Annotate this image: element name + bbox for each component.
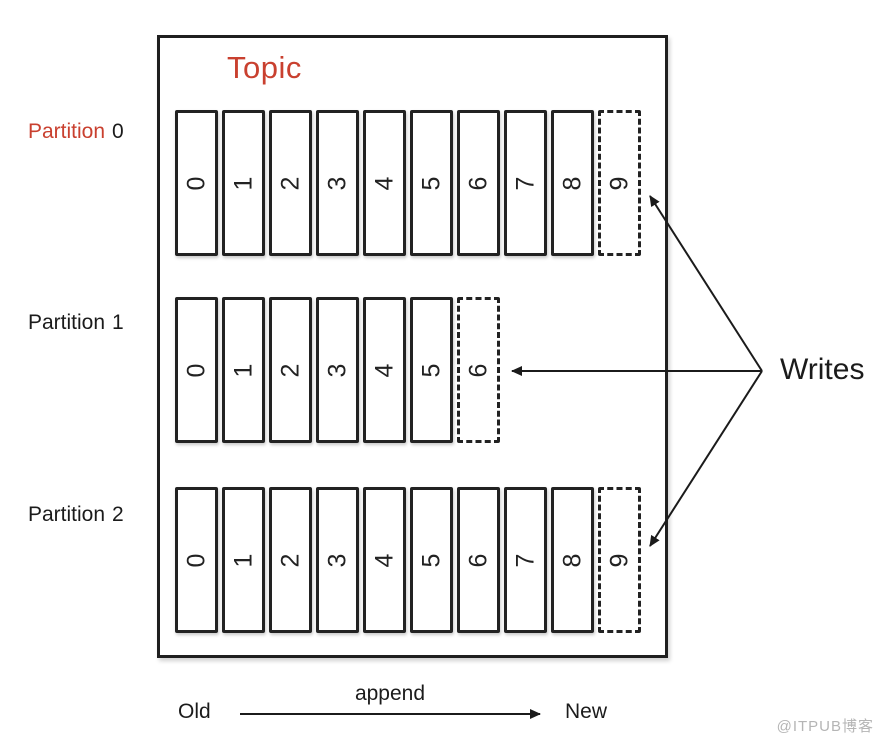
segment-offset-label: 1: [231, 176, 256, 190]
segment-offset-label: 9: [607, 176, 632, 190]
segment-cell: 0: [175, 487, 218, 633]
segment-cell-next: 9: [598, 110, 641, 256]
segment-offset-label: 4: [372, 363, 397, 377]
segment-offset-label: 5: [419, 363, 444, 377]
writes-label: Writes: [780, 353, 864, 387]
legend-append: append: [310, 682, 470, 706]
segment-offset-label: 0: [184, 363, 209, 377]
segment-offset-label: 2: [278, 363, 303, 377]
segment-cell: 4: [363, 110, 406, 256]
segment-cell: 1: [222, 110, 265, 256]
segment-offset-label: 9: [607, 553, 632, 567]
segment-cell: 2: [269, 110, 312, 256]
segment-offset-label: 7: [513, 176, 538, 190]
segment-offset-label: 2: [278, 176, 303, 190]
segment-cell: 5: [410, 297, 453, 443]
segment-cell: 2: [269, 297, 312, 443]
partition-0-segments: 0123456789: [175, 110, 641, 256]
segment-offset-label: 3: [325, 176, 350, 190]
segment-cell: 3: [316, 297, 359, 443]
segment-offset-label: 0: [184, 553, 209, 567]
partition-1-segments: 0123456: [175, 297, 500, 443]
topic-title: Topic: [227, 50, 302, 86]
partition-2-label: Partition2: [28, 503, 124, 527]
legend-new: New: [565, 700, 607, 724]
segment-cell: 4: [363, 487, 406, 633]
segment-offset-label: 8: [560, 553, 585, 567]
kafka-topic-diagram: Topic Partition0 Partition1 Partition2 0…: [0, 0, 890, 742]
partition-1-label: Partition1: [28, 311, 124, 335]
segment-offset-label: 6: [466, 363, 491, 377]
segment-offset-label: 1: [231, 553, 256, 567]
partition-0-label: Partition0: [28, 120, 124, 144]
segment-cell: 2: [269, 487, 312, 633]
segment-offset-label: 7: [513, 553, 538, 567]
segment-cell: 4: [363, 297, 406, 443]
segment-cell-next: 9: [598, 487, 641, 633]
segment-cell: 5: [410, 110, 453, 256]
watermark: @ITPUB博客: [777, 715, 874, 736]
segment-cell: 0: [175, 110, 218, 256]
segment-cell: 3: [316, 110, 359, 256]
segment-cell: 7: [504, 487, 547, 633]
partition-1-label-number: 1: [112, 311, 124, 334]
segment-offset-label: 5: [419, 553, 444, 567]
segment-offset-label: 2: [278, 553, 303, 567]
segment-offset-label: 0: [184, 176, 209, 190]
segment-offset-label: 5: [419, 176, 444, 190]
segment-cell: 1: [222, 297, 265, 443]
segment-cell: 0: [175, 297, 218, 443]
partition-2-segments: 0123456789: [175, 487, 641, 633]
legend-old: Old: [178, 700, 211, 724]
segment-offset-label: 6: [466, 176, 491, 190]
segment-cell: 1: [222, 487, 265, 633]
segment-offset-label: 6: [466, 553, 491, 567]
segment-cell-next: 6: [457, 297, 500, 443]
segment-cell: 8: [551, 110, 594, 256]
segment-cell: 6: [457, 110, 500, 256]
segment-cell: 7: [504, 110, 547, 256]
partition-0-label-number: 0: [112, 120, 124, 143]
segment-offset-label: 4: [372, 553, 397, 567]
partition-2-label-number: 2: [112, 503, 124, 526]
segment-offset-label: 1: [231, 363, 256, 377]
partition-2-label-prefix: Partition: [28, 503, 105, 526]
segment-cell: 8: [551, 487, 594, 633]
segment-offset-label: 3: [325, 363, 350, 377]
partition-1-label-prefix: Partition: [28, 311, 105, 334]
segment-cell: 6: [457, 487, 500, 633]
segment-offset-label: 3: [325, 553, 350, 567]
segment-offset-label: 8: [560, 176, 585, 190]
segment-offset-label: 4: [372, 176, 397, 190]
partition-0-label-prefix: Partition: [28, 120, 105, 143]
segment-cell: 5: [410, 487, 453, 633]
segment-cell: 3: [316, 487, 359, 633]
